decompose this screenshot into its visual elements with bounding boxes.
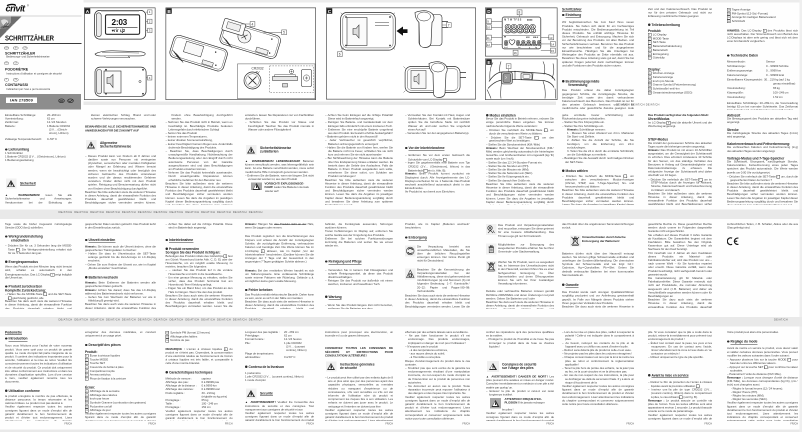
svg-text:13: 13 — [549, 36, 553, 40]
svg-text:D: D — [487, 9, 491, 15]
svg-text:E: E — [487, 60, 490, 66]
svg-text:11: 11 — [487, 36, 490, 40]
svg-text:6: 6 — [339, 52, 341, 56]
svg-text:kcal: kcal — [504, 47, 508, 49]
svg-text:®: ® — [27, 5, 29, 8]
svg-text:8: 8 — [518, 10, 520, 14]
svg-text:km: km — [518, 47, 521, 49]
svg-text:7: 7 — [448, 23, 450, 27]
svg-text:OK: OK — [60, 101, 64, 103]
svg-text:A: A — [86, 9, 90, 15]
svg-text:88888: 88888 — [504, 22, 536, 36]
svg-text:14: 14 — [551, 42, 555, 46]
svg-text:4: 4 — [251, 22, 253, 26]
svg-text:♥гіг վ2: ♥гіг վ2 — [112, 28, 126, 33]
svg-text:7: 7 — [507, 64, 509, 68]
svg-text:B: B — [167, 9, 171, 15]
svg-text:16: 16 — [513, 51, 517, 55]
svg-text:5: 5 — [283, 30, 285, 34]
svg-text:12: 12 — [487, 43, 491, 47]
svg-text:C: C — [328, 9, 332, 15]
svg-text:21: 21 — [409, 274, 413, 278]
svg-text:2:03: 2:03 — [112, 18, 128, 27]
svg-text:10: 10 — [487, 25, 491, 29]
svg-text:15: 15 — [551, 49, 555, 53]
